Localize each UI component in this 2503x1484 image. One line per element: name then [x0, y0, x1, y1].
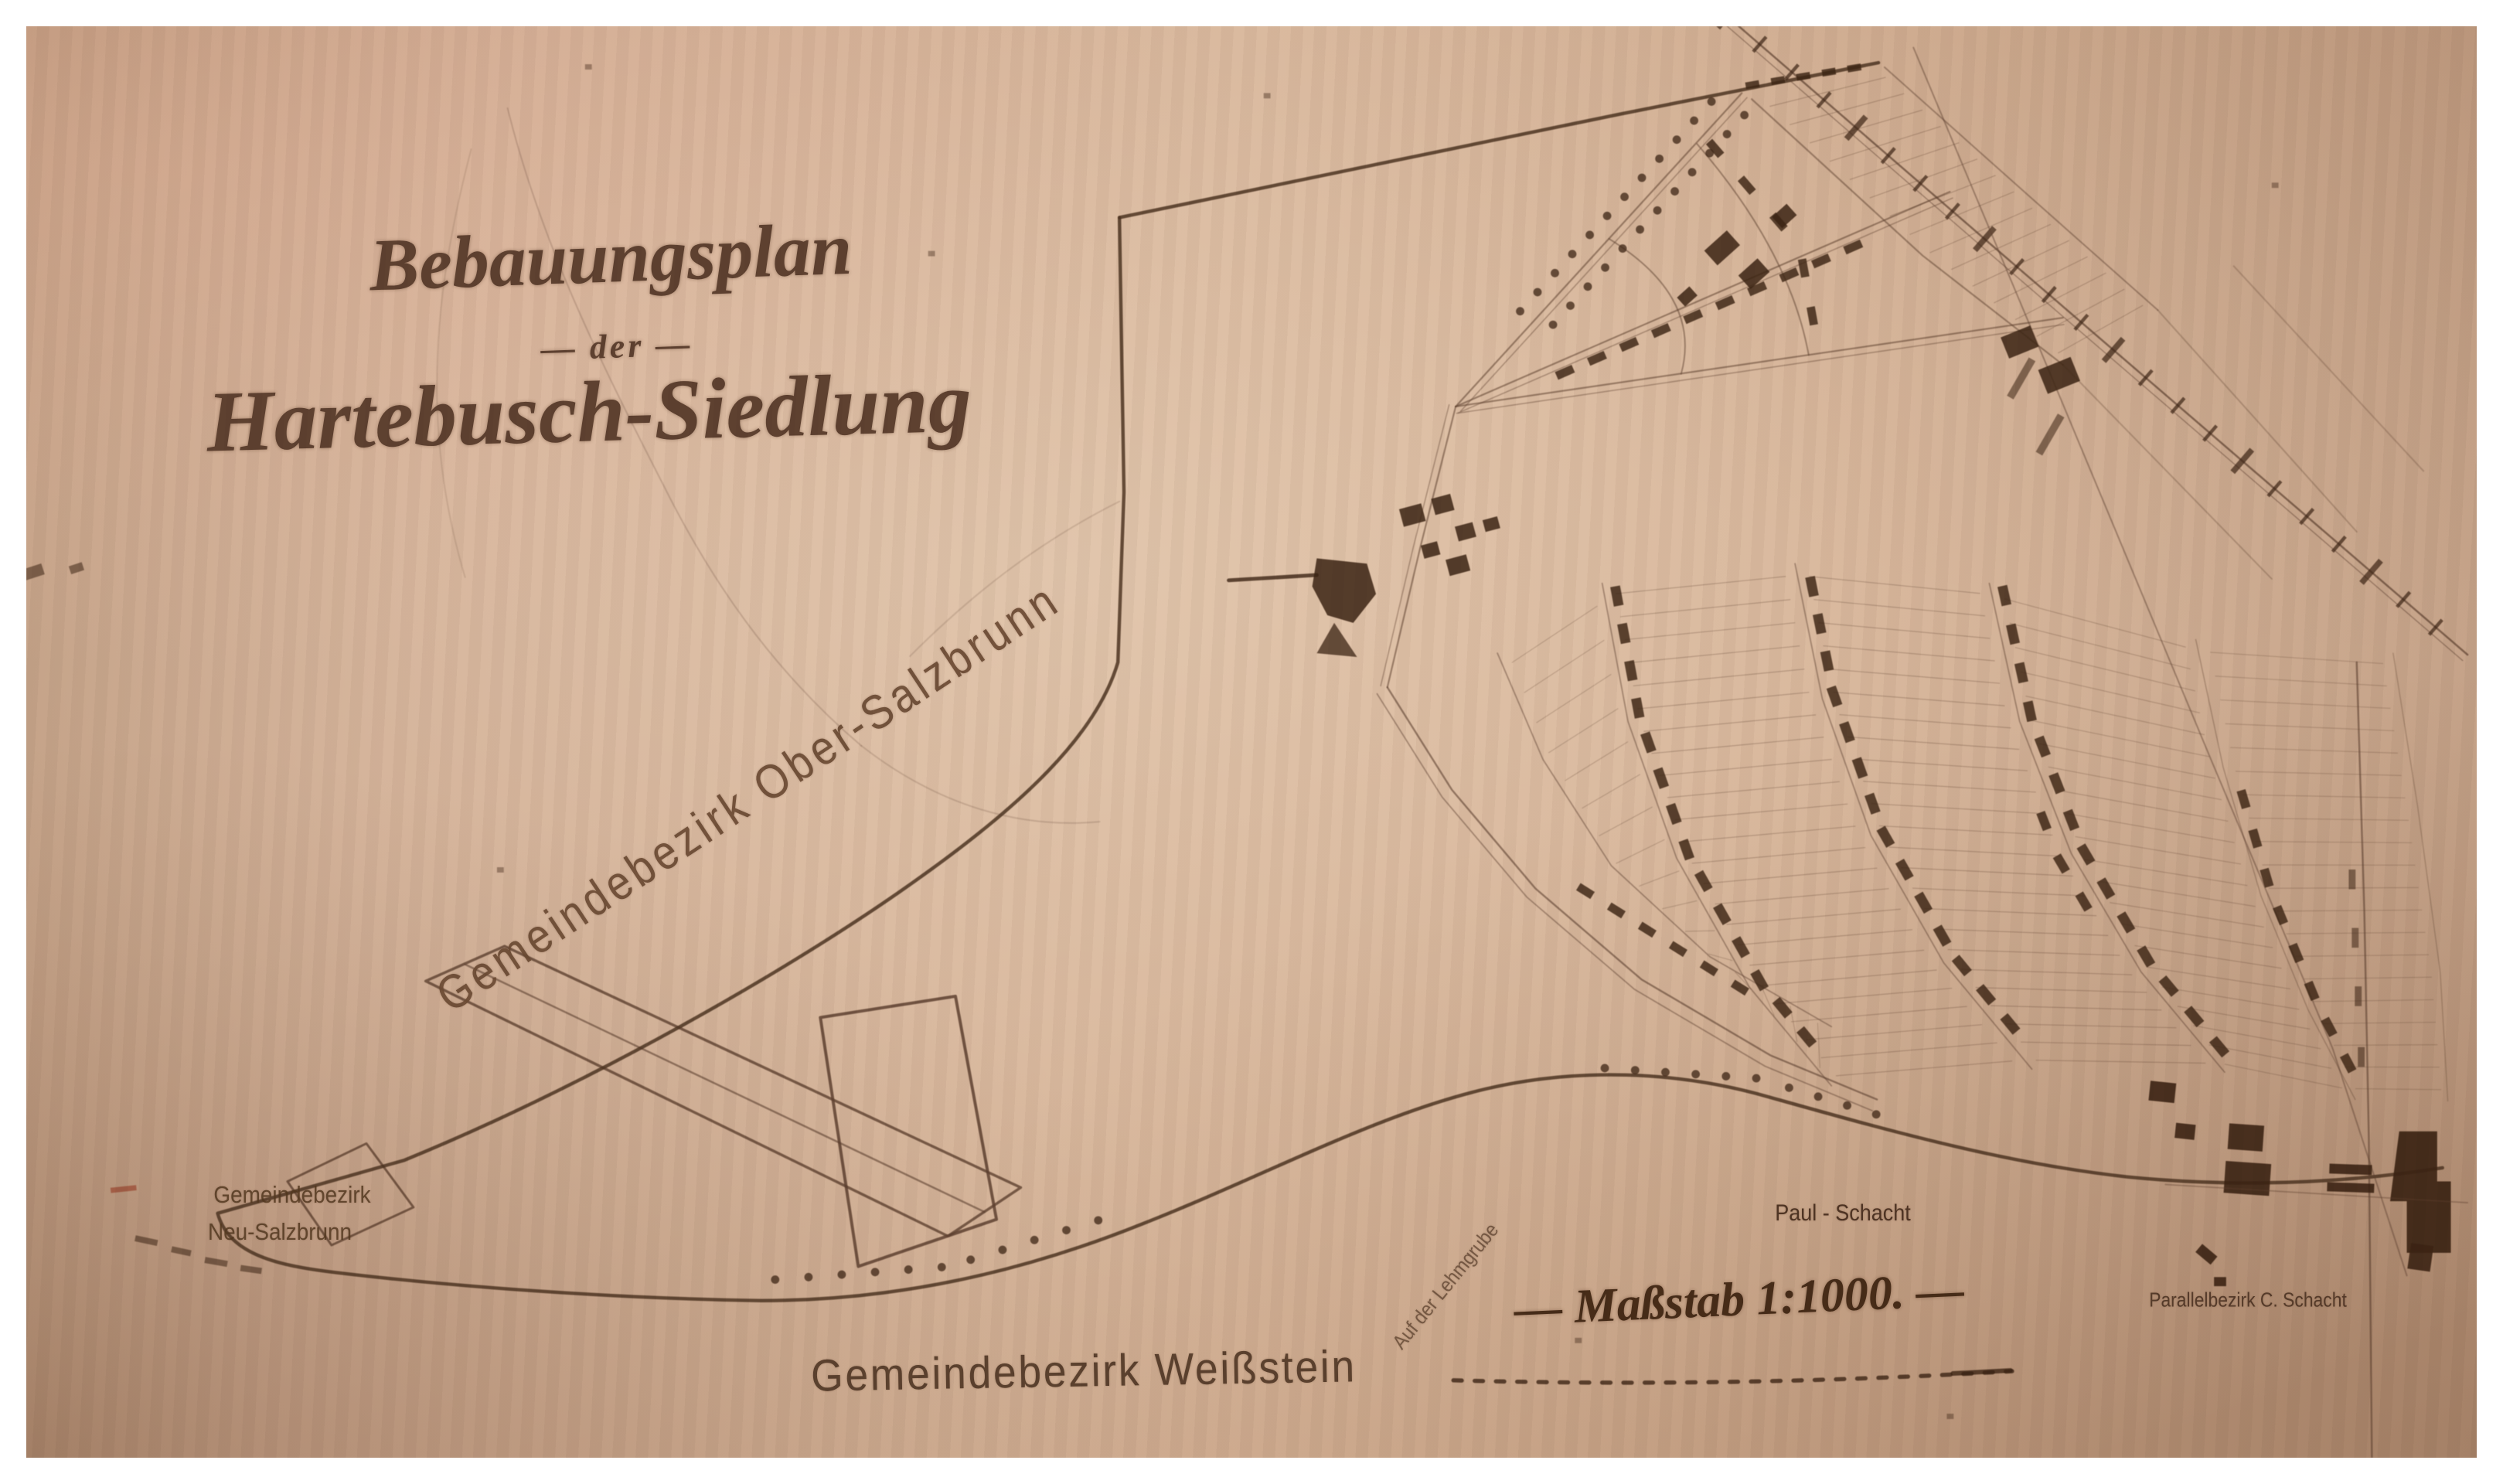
railway-tie — [1946, 204, 1960, 219]
building-mark — [2036, 811, 2052, 831]
plot-hatch-line — [1660, 760, 1832, 776]
tree-dot — [1752, 1074, 1761, 1083]
tree-dot — [1566, 301, 1575, 310]
plot-hatch-line — [2256, 842, 2412, 843]
fan-cross-street — [1609, 239, 1685, 374]
plot-hatch-line — [1863, 781, 2035, 792]
plot-hatch-line — [2036, 1060, 2206, 1064]
railway-line — [1716, 26, 2467, 655]
plot-hatch-line — [2220, 700, 2390, 709]
plot-hatch-line — [1548, 709, 1618, 753]
railway — [1711, 26, 2468, 1458]
building-mark — [1847, 63, 1861, 73]
crescent-road — [1377, 694, 1872, 1111]
tree-dot — [1690, 117, 1698, 125]
plot-hatch-line — [1879, 825, 2052, 835]
tree-dot — [1619, 244, 1627, 253]
plot-hatch-line — [2006, 1024, 2177, 1028]
tree-dot — [1843, 1101, 1851, 1110]
building-cluster — [1455, 522, 1476, 541]
scale-bar-line — [1453, 1371, 2012, 1383]
red-mark — [111, 1185, 137, 1193]
mine-building — [2390, 1132, 2451, 1253]
tree-dot — [1688, 168, 1697, 176]
railway-tie — [2332, 536, 2345, 551]
photo-mark — [69, 562, 84, 574]
photo-mark — [171, 1246, 192, 1256]
building-cluster — [1704, 230, 1740, 265]
plot-hatch-line — [1692, 848, 1865, 863]
plot-hatch-line — [2323, 1023, 2435, 1024]
plot-hatch-line — [1912, 888, 2085, 896]
plot-hatch-line — [1524, 640, 1605, 693]
mine-building — [2195, 1244, 2217, 1264]
fan-street — [1381, 405, 1449, 686]
tree-dot — [1516, 307, 1524, 315]
building-cluster — [2038, 357, 2080, 394]
tree-dot — [1691, 1070, 1700, 1078]
photo-mark — [240, 1265, 262, 1275]
plot-hatch-line — [1651, 737, 1824, 754]
tree-dot — [1534, 288, 1542, 297]
fan-street — [1456, 318, 2063, 407]
plot-hatch-line — [1823, 646, 1994, 661]
settlement-street — [1795, 563, 2031, 1069]
shaft-symbol — [1316, 623, 1357, 657]
plot-hatch-line — [1738, 930, 1912, 945]
photo-mark — [2348, 870, 2355, 890]
plot-hatch-line — [2304, 977, 2432, 979]
tree-dot — [1721, 1072, 1730, 1081]
tree-dot — [904, 1265, 913, 1274]
railway-tie — [1882, 148, 1895, 163]
plot-hatch-line — [1639, 871, 1679, 887]
plot-hatch-line — [2021, 672, 2200, 713]
building-mark — [1807, 306, 1818, 325]
plot-hatch-line — [1633, 669, 1804, 686]
tree-dot — [1030, 1236, 1039, 1244]
railway-tie — [2232, 450, 2252, 472]
plot-hatch-line — [1704, 868, 1878, 883]
plot-hatch-line — [1582, 774, 1640, 808]
building-mark — [1607, 903, 1626, 919]
plot-hatch-line — [1871, 804, 2045, 814]
plot-hatch-line — [2015, 648, 2195, 691]
tree-dot — [1814, 1092, 1823, 1101]
plot-hatch-line — [1685, 931, 1715, 931]
building-mark — [2006, 624, 2020, 645]
building-mark — [2096, 877, 2115, 899]
tree-dot — [1661, 1068, 1670, 1077]
building-mark — [2304, 981, 2320, 1001]
parallelbezirk-label: Parallelbezirk C. Schacht — [2149, 1288, 2347, 1312]
photo-mark — [2355, 986, 2362, 1006]
tree-dot — [1094, 1216, 1102, 1224]
plot-hatch-line — [1850, 143, 1959, 180]
photo-speck — [1946, 1414, 1953, 1419]
shaft-symbol-line — [1229, 575, 1317, 580]
railway-tie — [2171, 398, 2185, 413]
plot-hatch-line — [1727, 909, 1901, 924]
tree-dot — [1723, 130, 1732, 138]
building-marks — [1229, 63, 2357, 1074]
building-mark — [2076, 891, 2093, 911]
building-mark — [1796, 1026, 1817, 1048]
settlement-street — [1989, 584, 2224, 1072]
building-mark — [1631, 697, 1644, 718]
scale-bar — [1453, 1370, 2012, 1383]
building-mark — [1624, 660, 1637, 681]
tree-dot — [1631, 1066, 1640, 1074]
building-mark — [1638, 922, 1657, 938]
plot-hatch-line — [1990, 1006, 2161, 1010]
settlement-street — [1602, 584, 1832, 1086]
map-title-line1: Bebauungsplan — [368, 206, 853, 308]
building-mark — [1694, 870, 1713, 893]
photo-speck — [1575, 1338, 1582, 1343]
plot-hatch-line — [1761, 970, 1936, 985]
plot-hatch-line — [2110, 903, 2264, 927]
building-mark — [1877, 825, 1895, 848]
building-mark — [1821, 68, 1836, 77]
plot-hatch-line — [1683, 826, 1855, 842]
railway-tie — [2139, 370, 2152, 385]
building-mark — [2248, 829, 2262, 849]
fan-street — [1459, 198, 1953, 413]
plot-hatch-line — [1620, 600, 1790, 617]
plot-hatching — [1512, 77, 2441, 1090]
photo-speck — [585, 64, 592, 70]
photo-mark — [135, 1235, 158, 1246]
railway-line — [1711, 26, 2463, 661]
district-label-neu-salzbrunn-line2: Neu-Salzbrunn — [208, 1218, 352, 1246]
building-mark — [1738, 175, 1756, 195]
tree-dot — [1785, 1084, 1793, 1092]
tree-dot — [1740, 111, 1749, 119]
tree-dot — [1673, 135, 1681, 144]
plot-hatch-line — [1936, 929, 2108, 935]
map-photo: Bebauungsplan — der — Hartebusch-Siedlun… — [26, 26, 2477, 1458]
building-mark — [2053, 853, 2070, 873]
building-mark — [2048, 772, 2065, 794]
tree-dot — [1601, 1064, 1609, 1073]
scale-bar-line — [1953, 1370, 2011, 1373]
shaft-symbol — [1313, 558, 1376, 622]
mine-building — [2148, 1081, 2176, 1103]
plot-hatch-line — [1599, 807, 1653, 836]
plot-hatch-line — [1809, 577, 1980, 594]
plot-hatch-line — [1675, 804, 1847, 819]
tree-dot — [1655, 155, 1664, 163]
tree-dot — [1708, 97, 1716, 106]
tree-dot — [1601, 264, 1609, 272]
building-mark — [2023, 700, 2037, 722]
building-mark — [1771, 76, 1786, 85]
railway-tie — [2430, 620, 2443, 635]
plot-hatch-line — [1976, 988, 2147, 992]
building-mark — [2209, 1036, 2229, 1057]
building-mark — [1750, 969, 1769, 992]
railway-tie — [1975, 228, 1994, 250]
plot-hatch-line — [2097, 881, 2255, 907]
building-mark — [1827, 686, 1843, 707]
tree-dot — [1638, 174, 1647, 182]
fan-street — [1461, 97, 1747, 411]
district-label-neu-salzbrunn-line1: Gemeindebezirk — [213, 1181, 370, 1209]
building-mark — [2288, 943, 2304, 963]
building-mark — [1796, 72, 1810, 81]
plot-hatch-line — [1662, 900, 1697, 908]
plot-hatch-line — [2215, 676, 2387, 686]
photo-mark — [2007, 358, 2035, 400]
district-label-weissstein: Gemeindebezirk Weißstein — [811, 1340, 1357, 1401]
building-cluster — [1446, 554, 1470, 576]
tail-parcel — [820, 996, 996, 1267]
tree-dot — [1584, 282, 1592, 291]
building-mark — [1713, 903, 1732, 925]
photo-frame: Bebauungsplan — der — Hartebusch-Siedlun… — [0, 0, 2503, 1484]
building-mark — [1820, 650, 1834, 672]
tree-dot — [966, 1255, 975, 1264]
photo-speck — [928, 251, 935, 257]
railway-tie — [1753, 37, 1766, 52]
building-mark — [2260, 868, 2273, 888]
plot-hatch-line — [1813, 600, 1985, 616]
building-mark — [2063, 809, 2079, 831]
map-title-line3: Hartebusch-Siedlung — [206, 353, 973, 473]
tree-dot — [771, 1275, 779, 1284]
plot-hatch-line — [1512, 606, 1597, 662]
plot-hatch-line — [2085, 859, 2247, 886]
plot-hatch-line — [2015, 273, 2106, 319]
plot-hatch-line — [2334, 1045, 2437, 1046]
railway-tie — [2104, 339, 2123, 361]
tree-dot — [938, 1263, 946, 1271]
plot-hatch-line — [2004, 599, 2186, 647]
railway-tie — [1914, 176, 1927, 191]
plot-hatch-line — [1749, 950, 1924, 965]
plot-hatch-line — [1960, 969, 2132, 975]
tree-dot — [1551, 269, 1559, 277]
plot-hatch-line — [1818, 623, 1990, 638]
railway-tie — [2011, 259, 2024, 274]
streets — [1377, 67, 2447, 1111]
building-mark — [1895, 859, 1914, 881]
plot-hatch-line — [2076, 836, 2241, 864]
building-cluster — [1421, 541, 1440, 559]
railway-tie — [2397, 592, 2410, 607]
plot-hatch-line — [1776, 989, 1952, 1004]
mine-building — [2228, 1123, 2264, 1151]
railway-tie — [2362, 560, 2381, 583]
plot-hatch-line — [2249, 818, 2409, 820]
plot-hatch-line — [1839, 715, 2011, 728]
creek-line — [437, 149, 471, 577]
building-mark — [1700, 961, 1718, 977]
photo-mark — [204, 1257, 227, 1267]
plot-hatch-line — [2277, 910, 2422, 911]
plot-hatch-line — [2313, 999, 2433, 1001]
building-mark — [1933, 924, 1952, 947]
fan-street — [1456, 192, 1950, 407]
building-mark — [1640, 731, 1657, 753]
plot-hatch-line — [1855, 759, 2028, 771]
mine-building — [2174, 1123, 2195, 1140]
building-mark — [2273, 905, 2288, 925]
tree-dot — [1549, 321, 1558, 329]
building-mark — [1666, 803, 1682, 825]
tree-dot — [805, 1273, 813, 1281]
building-cluster — [2001, 325, 2038, 359]
plot-hatch-line — [1629, 646, 1800, 663]
fan-street — [1456, 325, 2064, 414]
plot-hatch-line — [1806, 1025, 1982, 1040]
tail-parcels — [288, 946, 1021, 1266]
building-mark — [1805, 576, 1819, 597]
plot-hatch-line — [2048, 767, 2222, 799]
plot-hatch-line — [2122, 924, 2273, 948]
building-mark — [1839, 721, 1855, 743]
railway-tie — [2268, 482, 2281, 496]
photo-speck — [2272, 182, 2279, 188]
building-mark — [1952, 955, 1972, 976]
plot-hatch-line — [2236, 771, 2402, 775]
plot-hatch-line — [1901, 868, 2073, 876]
tree-dot — [838, 1271, 846, 1279]
tree-dot — [1620, 192, 1629, 201]
plot-hatch-line — [2021, 1042, 2191, 1045]
plot-hatch-line — [2242, 795, 2406, 798]
field-line — [2234, 266, 2423, 471]
building-mark — [1653, 768, 1669, 789]
building-cluster — [1483, 516, 1500, 532]
building-mark — [2035, 736, 2051, 757]
building-mark — [2184, 1006, 2204, 1027]
building-cluster — [1399, 503, 1426, 526]
mine-building — [2214, 1277, 2226, 1286]
paul-schacht-label: Paul - Schacht — [1775, 1200, 1911, 1227]
photo-mark — [26, 563, 45, 585]
photo-mark — [2351, 928, 2358, 948]
building-mark — [2340, 1053, 2356, 1073]
plot-hatch-line — [1616, 839, 1665, 863]
boundary-line — [1119, 63, 1878, 217]
building-mark — [1914, 892, 1933, 914]
mine-building — [2329, 1164, 2372, 1176]
plot-hatch-line — [2230, 747, 2398, 753]
plot-hatch-line — [1625, 623, 1796, 640]
plot-hatch-line — [2031, 720, 2209, 757]
building-mark — [1678, 839, 1694, 860]
plot-hatch-line — [2135, 945, 2282, 968]
building-mark — [1617, 623, 1630, 644]
railway-tie — [1817, 93, 1830, 107]
plot-hatch-line — [2225, 723, 2394, 730]
building-mark — [2159, 975, 2179, 997]
plot-hatch-line — [1616, 577, 1786, 594]
plot-hatch-line — [1833, 692, 2005, 706]
building-mark — [1732, 936, 1750, 958]
photo-mark — [2036, 414, 2065, 455]
plot-hatch-line — [1667, 781, 1840, 798]
building-mark — [1669, 941, 1687, 957]
building-mark — [1997, 585, 2011, 607]
plot-hatch-line — [1948, 950, 2120, 955]
photo-mark — [2358, 1047, 2365, 1067]
plot-hatch-line — [1565, 742, 1628, 781]
photo-speck — [497, 867, 504, 873]
tree-dot — [1603, 212, 1612, 220]
tree-dot — [1670, 187, 1679, 196]
building-cluster — [1431, 494, 1454, 515]
railway-tie — [2300, 509, 2314, 523]
tree-dot — [1636, 225, 1644, 233]
plot-hatch-line — [1836, 1061, 2012, 1076]
railway-tie — [2075, 315, 2088, 329]
tree-dot — [1653, 206, 1662, 215]
plot-hatch-line — [1643, 715, 1816, 731]
building-mark — [2236, 789, 2250, 809]
plot-hatch-line — [2039, 744, 2215, 778]
plot-hatch-line — [1994, 257, 2087, 303]
plot-hatch-line — [1715, 889, 1889, 904]
settlement-street — [2393, 653, 2448, 1101]
building-mark — [1813, 613, 1827, 635]
field-line — [2157, 310, 2356, 532]
railway-tie — [2204, 426, 2217, 441]
tree-dot — [1062, 1226, 1071, 1234]
tail-parcel — [426, 946, 1021, 1236]
tree-dot — [871, 1268, 880, 1276]
building-mark — [2077, 843, 2096, 865]
plot-hatch-line — [1847, 737, 2019, 749]
plot-hatch-line — [2269, 887, 2418, 888]
plot-hatch-line — [1889, 847, 2062, 856]
plot-hatch-line — [1924, 909, 2096, 916]
photo-speck — [1264, 93, 1271, 98]
building-mark — [1773, 997, 1793, 1019]
tree-dot — [1568, 250, 1577, 258]
building-mark — [2014, 662, 2028, 684]
plot-hatch-line — [1817, 1023, 1820, 1067]
plot-hatch-line — [2026, 696, 2205, 735]
building-mark — [1576, 883, 1595, 900]
building-mark — [1610, 585, 1623, 606]
plot-hatch-line — [1791, 1006, 1967, 1022]
plot-hatch-line — [2295, 955, 2429, 956]
plot-hatch-line — [1536, 674, 1611, 723]
plot-hatch-line — [2225, 1064, 2342, 1088]
tree-dot — [999, 1246, 1007, 1254]
plot-hatch-line — [1828, 669, 2000, 683]
tree-dot — [1872, 1110, 1881, 1118]
plot-hatch-line — [1637, 693, 1809, 709]
creek-line — [861, 746, 1099, 823]
plot-hatch-line — [2162, 987, 2300, 1009]
plot-hatch-line — [1830, 127, 1941, 162]
tree-dot — [1585, 231, 1594, 240]
building-mark — [2116, 911, 2135, 933]
plot-hatch-line — [1821, 1043, 1997, 1057]
mine-building — [2327, 1182, 2374, 1193]
